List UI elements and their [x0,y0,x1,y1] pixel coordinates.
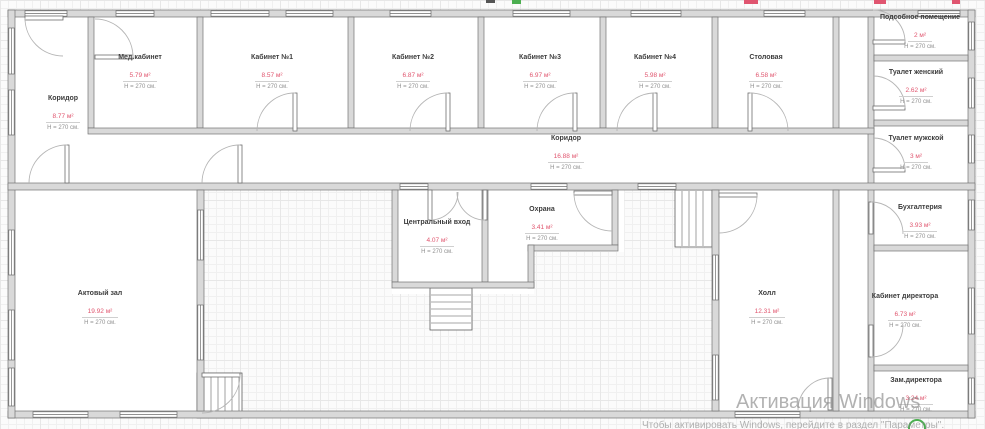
room-area-right-wing[interactable] [712,190,975,418]
windows-activation-watermark-subtitle: Чтобы активировать Windows, перейдите в … [642,420,944,429]
wall[interactable] [874,120,968,126]
edge-artifact-red [874,0,886,4]
edge-artifact-red [952,0,960,4]
wall[interactable] [712,17,718,128]
wall[interactable] [88,17,94,128]
room-area-top-wing[interactable] [8,10,975,190]
wall[interactable] [874,245,968,251]
wall[interactable] [348,17,354,128]
wall[interactable] [833,17,839,128]
entrance-steps[interactable] [430,288,472,330]
wall[interactable] [600,17,606,128]
edge-artifact-dark [486,0,495,3]
wall[interactable] [874,365,968,371]
room-area-assembly-hall[interactable] [8,190,204,418]
floor-plan-canvas[interactable]: Коридор8.77 м²H = 270 см. Мед.кабинет5.7… [0,0,985,429]
wall[interactable] [197,17,203,128]
wall-corridor-south[interactable] [8,183,975,190]
wall[interactable] [392,190,398,282]
wall[interactable] [612,190,618,245]
windows-activation-watermark: Активация Windows [736,391,920,414]
staircase-hall[interactable] [675,190,712,247]
wall-rooms-corridor[interactable] [88,128,874,134]
wall[interactable] [528,245,534,288]
wall[interactable] [528,245,618,251]
wall[interactable] [874,55,968,61]
floor-plan-drawing [0,0,985,429]
wall[interactable] [392,282,534,288]
edge-artifact-red [744,0,758,4]
room-area-entrance-security[interactable] [392,190,624,252]
wall[interactable] [833,190,839,411]
wall[interactable] [478,17,484,128]
edge-artifact-green [512,0,521,4]
